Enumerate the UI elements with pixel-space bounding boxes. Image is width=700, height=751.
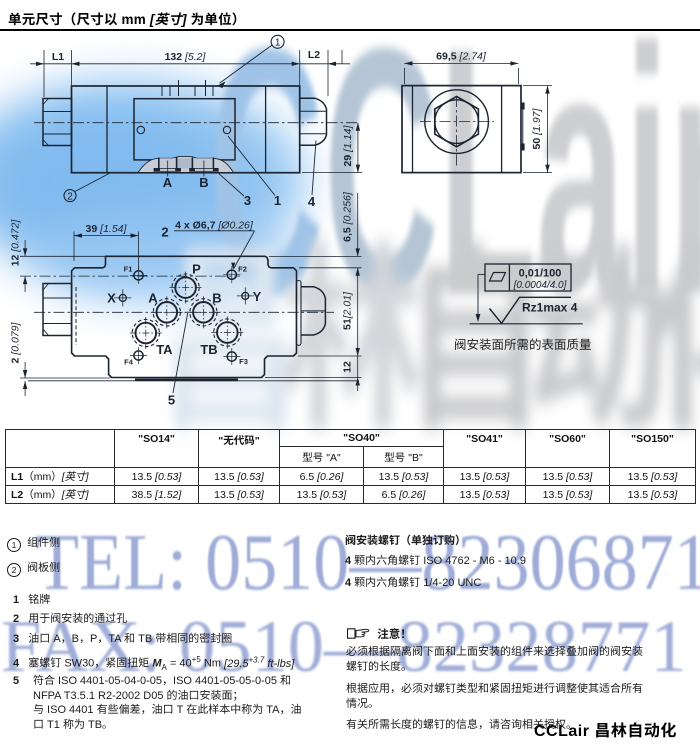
svg-text:阀安装面所需的表面质量: 阀安装面所需的表面质量 (454, 338, 592, 352)
svg-text:[0.0004/4.0]: [0.0004/4.0] (513, 280, 567, 291)
svg-text:A: A (148, 290, 158, 305)
svg-text:B: B (212, 290, 221, 305)
svg-text:4 x Ø6,7 [Ø0.26]: 4 x Ø6,7 [Ø0.26] (175, 220, 254, 232)
svg-text:Y: Y (253, 289, 262, 304)
svg-text:132 [5.2]: 132 [5.2] (165, 51, 207, 63)
svg-text:6,5 [0.256]: 6,5 [0.256] (342, 191, 354, 242)
svg-text:1: 1 (274, 193, 281, 208)
svg-text:69,5 [2.74]: 69,5 [2.74] (436, 51, 487, 63)
svg-text:29 [1.14]: 29 [1.14] (342, 124, 354, 166)
svg-text:Rz1max 4: Rz1max 4 (522, 301, 578, 315)
svg-text:F4: F4 (124, 358, 134, 367)
svg-text:F1: F1 (124, 265, 133, 274)
svg-text:0,01/100: 0,01/100 (519, 268, 562, 280)
svg-text:B: B (199, 175, 208, 190)
svg-text:39 [1.54]: 39 [1.54] (86, 223, 128, 235)
svg-text:12 [0.472]: 12 [0.472] (10, 219, 22, 267)
svg-text:A: A (163, 175, 173, 190)
svg-text:F3: F3 (239, 357, 248, 366)
svg-text:L2: L2 (308, 49, 320, 61)
svg-text:TA: TA (156, 342, 173, 357)
svg-text:2 [0.079]: 2 [0.079] (10, 321, 22, 363)
svg-text:3: 3 (244, 193, 251, 208)
svg-text:2: 2 (67, 191, 73, 202)
svg-text:P: P (192, 262, 201, 277)
svg-text:L1: L1 (52, 51, 64, 63)
svg-text:5: 5 (168, 393, 175, 408)
svg-text:1: 1 (275, 38, 281, 49)
svg-text:2: 2 (161, 225, 168, 240)
svg-text:51[2.01]: 51[2.01] (342, 291, 354, 330)
svg-text:12: 12 (342, 361, 354, 373)
svg-text:TB: TB (200, 342, 217, 357)
svg-text:50 [1.97]: 50 [1.97] (531, 107, 543, 149)
svg-text:F2: F2 (238, 264, 247, 273)
svg-text:X: X (107, 291, 116, 306)
svg-text:4: 4 (308, 194, 316, 209)
